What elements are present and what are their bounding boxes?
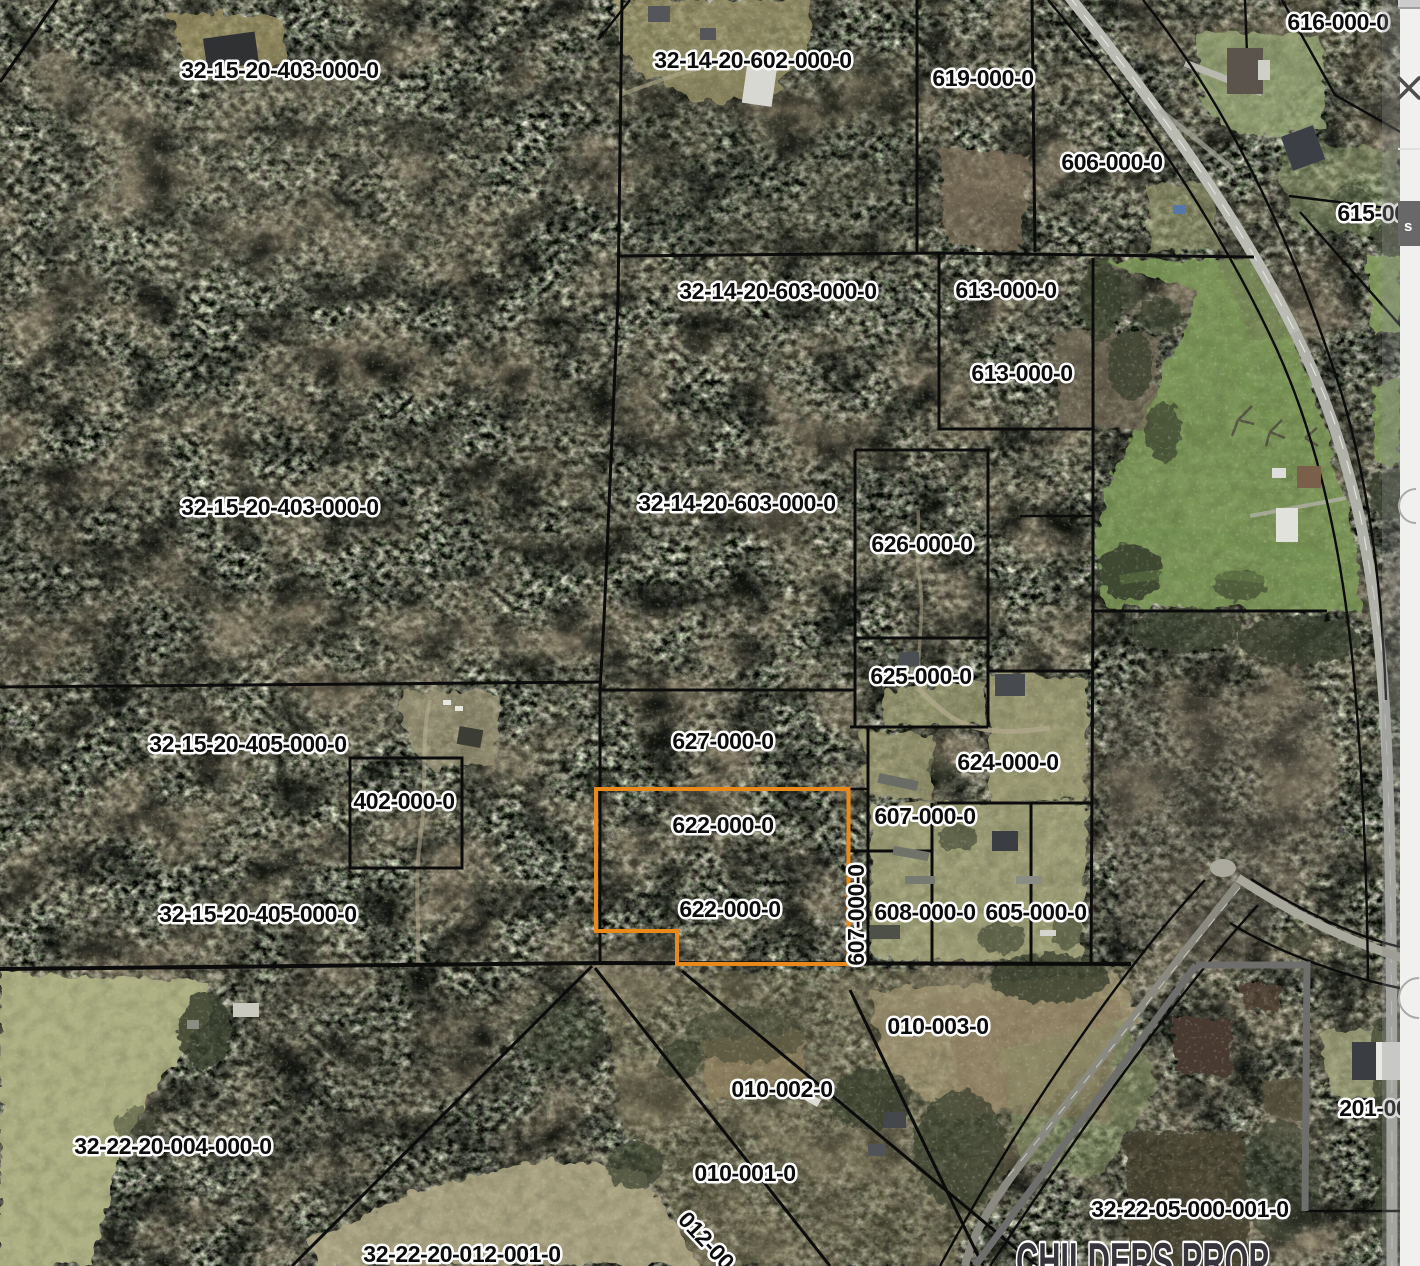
svg-text:32-22-05-000-001-0: 32-22-05-000-001-0 (1091, 1196, 1288, 1222)
svg-text:626-000-0: 626-000-0 (871, 531, 972, 557)
svg-text:622-000-0: 622-000-0 (672, 812, 773, 838)
svg-text:32-22-20-012-001-0: 32-22-20-012-001-0 (363, 1241, 560, 1266)
svg-text:606-000-0: 606-000-0 (1061, 149, 1162, 175)
svg-text:010-003-0: 010-003-0 (887, 1013, 988, 1039)
svg-text:608-000-0: 608-000-0 (874, 899, 975, 925)
svg-text:32-15-20-403-000-0: 32-15-20-403-000-0 (181, 57, 378, 83)
svg-text:607-000-0: 607-000-0 (843, 864, 869, 965)
svg-text:402-000-0: 402-000-0 (353, 788, 454, 814)
svg-text:607-000-0: 607-000-0 (874, 803, 975, 829)
svg-text:605-000-0: 605-000-0 (985, 899, 1086, 925)
svg-text:32-14-20-603-000-0: 32-14-20-603-000-0 (679, 278, 876, 304)
svg-text:627-000-0: 627-000-0 (672, 728, 773, 754)
svg-text:CHILDERS PROP: CHILDERS PROP (1016, 1233, 1269, 1266)
svg-text:622-000-0: 622-000-0 (679, 896, 780, 922)
svg-text:32-14-20-602-000-0: 32-14-20-602-000-0 (654, 47, 851, 73)
svg-text:32-14-20-603-000-0: 32-14-20-603-000-0 (638, 490, 835, 516)
svg-text:625-000-0: 625-000-0 (870, 663, 971, 689)
svg-text:010-001-0: 010-001-0 (694, 1160, 795, 1186)
svg-text:613-000-0: 613-000-0 (971, 360, 1072, 386)
svg-text:32-22-20-004-000-0: 32-22-20-004-000-0 (74, 1133, 271, 1159)
svg-text:624-000-0: 624-000-0 (957, 749, 1058, 775)
svg-text:613-000-0: 613-000-0 (955, 277, 1056, 303)
svg-text:32-15-20-405-000-0: 32-15-20-405-000-0 (159, 901, 356, 927)
svg-text:32-15-20-403-000-0: 32-15-20-403-000-0 (181, 494, 378, 520)
svg-text:619-000-0: 619-000-0 (932, 65, 1033, 91)
svg-text:010-002-0: 010-002-0 (731, 1076, 832, 1102)
svg-text:s: s (1404, 218, 1412, 235)
svg-text:32-15-20-405-000-0: 32-15-20-405-000-0 (149, 731, 346, 757)
svg-text:616-000-0: 616-000-0 (1287, 9, 1388, 35)
